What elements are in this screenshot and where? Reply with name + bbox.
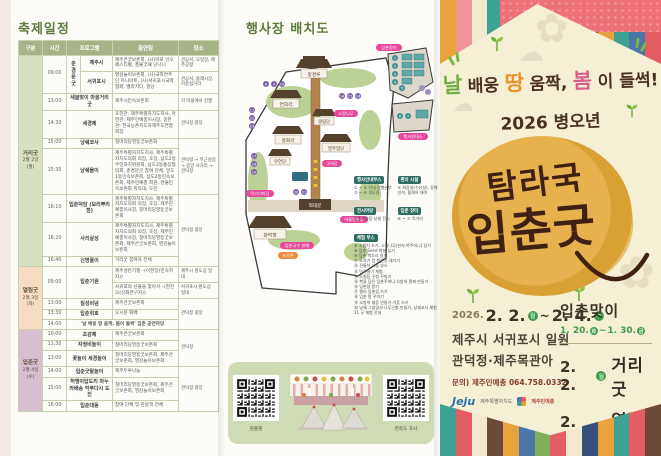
cell-cast: 참여 단체 및 관람객 전체 xyxy=(113,401,179,412)
day-badge: 화 xyxy=(590,327,598,335)
table-row: 14:30 세경제 초헌관: 제주특별자치도지사, 아헌관: 제주민예총이사장,… xyxy=(19,110,219,138)
cell-sub: 제주시 xyxy=(81,56,113,72)
cell-cast: 영감놀이보존회, (사)국악연주단 하니아트, (사)서귀포시국악협회, 벨라지… xyxy=(113,71,179,93)
table-header-row: 구분 시간 프로그램 출연팀 장소 xyxy=(19,41,219,56)
cover-slogan: 날 배웅 땅 움짝, 봄 이 들썩! xyxy=(440,62,661,100)
legend-section: 체험 부스 ⑧ 소원지 쓰기, 소원나무(한지·복주머니) 달기 ⑨ 입춘 Se… xyxy=(354,224,438,316)
sprout-icon xyxy=(464,286,482,304)
cell-program: 입춘휘호 xyxy=(67,309,113,320)
svg-text:입춘장터: 입춘장터 xyxy=(381,44,397,51)
building-gwandeokjeong: 관덕정 xyxy=(248,216,292,239)
col-gubun: 구분 xyxy=(19,41,43,56)
cell-time: 11:30 xyxy=(43,340,67,351)
cell-time: 13:00 xyxy=(43,351,67,367)
cloud-motif: ☁ xyxy=(518,38,544,68)
cell-program: '날 배웅 땅 움짝, 봄이 들썩' 입춘 공연마당 xyxy=(67,320,179,330)
cell-time: 14:00 xyxy=(43,367,67,378)
slogan-stroke xyxy=(455,52,459,62)
table-row: 16:10 입춘덕담 (보리뿌리점) 제주특별자치도지사, 제주특별자치도의회 … xyxy=(19,195,219,223)
svg-text:관덕정: 관덕정 xyxy=(263,231,276,238)
cell-cast: 제주두루나눔 xyxy=(113,367,179,378)
cell-place: 관덕정 광장 xyxy=(179,367,219,412)
building-oedaemun-gate: 외대문 xyxy=(299,199,331,210)
qr-left-caption: 원플랫 xyxy=(233,426,279,432)
cell-place: 관공서, 오일장, 제주공항 xyxy=(179,56,219,72)
cell-cast: 제주시민속보존회 xyxy=(113,93,179,110)
brochure-page: 축제일정 구분 시간 프로그램 출연팀 장소 거리굿 2월 2일 (월) 09:… xyxy=(0,0,661,456)
schedule-table: 구분 시간 프로그램 출연팀 장소 거리굿 2월 2일 (월) 09:00 춘경… xyxy=(18,40,219,412)
svg-text:21: 21 xyxy=(302,190,307,194)
cell-cast: 초헌관: 제주특별자치도지사, 아헌관: 제주민예총이사장, 종헌관: 한국농촌… xyxy=(113,110,179,138)
group-cell: 열림굿 2월 3일 (화) xyxy=(19,267,43,330)
cell-cast: 칠머리당영등굿보존회, 제주큰굿보존회, 영감놀이보존회 xyxy=(113,351,179,367)
building-yeonhuigak: 연희각 xyxy=(270,90,302,108)
cell-program: 신명풀이 xyxy=(67,256,113,267)
cell-program: 사리살성 xyxy=(67,222,113,256)
pond xyxy=(292,172,308,181)
svg-text:1: 1 xyxy=(394,56,396,60)
cell-time: 14:00 xyxy=(43,320,67,330)
venue-map-panel: 행사장 배치도 xyxy=(220,0,440,456)
svg-text:외대문: 외대문 xyxy=(309,202,322,209)
cell-place: 서귀포시 원도심 일대 xyxy=(179,283,219,299)
legend-chip: 체험 부스 xyxy=(354,234,378,242)
cell-program: 춘경문굿 xyxy=(67,56,81,94)
svg-text:소원나무: 소원나무 xyxy=(338,110,354,117)
cell-cast: 제주특별자치도지사, 제주특별자치도의회 의장, 호장, 제주민예총이사장, 칠… xyxy=(113,195,179,223)
svg-text:영주협당: 영주협당 xyxy=(328,145,344,152)
left-edge-strip xyxy=(0,0,11,456)
legend-chip: 전시마당 xyxy=(354,207,376,215)
legend-chip: 편의 시설 xyxy=(398,176,422,184)
day-badge: 월 xyxy=(528,311,538,321)
svg-text:16: 16 xyxy=(356,94,361,98)
legend-section: 전시마당 입춘기원탑·낭쉐 전시 xyxy=(354,197,395,221)
cell-program: 칠성비념 xyxy=(67,299,113,310)
ritual-table-illustration xyxy=(288,374,374,432)
cell-place: 관덕정 → 무근성길 → 중앙 사거리 → 관덕정 xyxy=(179,138,219,194)
jeju-logo: Jeju xyxy=(452,395,475,408)
cell-place: 관공서, 올레시장, 이중섭거리 xyxy=(179,71,219,93)
cell-program: 허맹이답도리 마누라배송 막푸다시 도진 xyxy=(67,377,113,401)
svg-text:17: 17 xyxy=(252,154,257,158)
cell-cast: 오시훈 화백 xyxy=(113,309,179,320)
legend-section: 입춘 장터 ⑥ ~ ⑦ 먹거리 xyxy=(398,197,439,221)
svg-text:12: 12 xyxy=(250,116,255,120)
cell-time: 13:00 xyxy=(43,93,67,110)
cover-panel: ✿ ☁ ☁ ✿ 날 배웅 땅 움짝, 봄 xyxy=(440,0,661,456)
day-badge: 월 xyxy=(596,371,606,381)
cell-program: 낭쉐몰이 xyxy=(67,149,113,195)
svg-text:19: 19 xyxy=(252,170,257,174)
svg-text:연희각: 연희각 xyxy=(280,101,293,108)
table-row: 15:00 낭쉐코사 칠머리당영등굿보존회 관덕정 → 무근성길 → 중앙 사거… xyxy=(19,138,219,149)
qr-band: 원플랫 xyxy=(228,362,434,444)
svg-text:먹거리마당: 먹거리마당 xyxy=(250,190,269,197)
svg-text:굿마당: 굿마당 xyxy=(326,160,338,167)
cell-place: 관덕정 광장 xyxy=(179,110,219,138)
cell-program: 자청비놀이 xyxy=(67,340,113,351)
svg-text:행사안내소: 행사안내소 xyxy=(403,133,422,140)
cell-cast: 제주성안기행 –(이현장(민속학자)) xyxy=(113,267,179,283)
table-row: 입춘굿 2월 4일 (수) 10:00 초감제 제주큰굿보존회 관덕정 xyxy=(19,330,219,341)
cell-cast: 서귀포의 산물을 찾아서 –(현진오(신화연구자)) xyxy=(113,283,179,299)
pre-event-dates: 1. 20. 화 ~ 1. 30. 금 xyxy=(560,326,656,336)
map-title: 행사장 배치도 xyxy=(246,18,329,37)
schedule-panel: 축제일정 구분 시간 프로그램 출연팀 장소 거리굿 2월 2일 (월) 09:… xyxy=(11,0,220,456)
cell-time: 09:00 xyxy=(43,267,67,299)
qr-right-caption: 만족도 조사 xyxy=(383,426,429,432)
cell-cast: 칠머리당영등굿보존회 xyxy=(113,138,179,149)
svg-text:14: 14 xyxy=(340,94,345,98)
svg-text:5: 5 xyxy=(401,86,403,90)
table-row: 거리굿 2월 2일 (월) 09:00 춘경문굿 제주시 제주큰굿보존회, (사… xyxy=(19,56,219,72)
cell-cast: 칠머리당영등굿보존회 xyxy=(113,340,179,351)
svg-text:11: 11 xyxy=(250,108,255,112)
cell-time: 09:00 xyxy=(43,56,67,94)
table-row: 13:00 칠성비념 제주큰굿보존회 관덕정 광장 xyxy=(19,299,219,310)
cell-cast: 제주큰굿보존회, (사)마로 인오페스티벌, 풍물굿패 난나니 xyxy=(113,56,179,72)
qr-right: 만족도 조사 xyxy=(383,375,429,432)
cell-time: 15:00 xyxy=(43,377,67,401)
legend-chip: 입춘 장터 xyxy=(398,207,422,215)
legend-section: 편의 시설 ⑤ 화장실(수유실), 장애인석, 휠체어 대여 xyxy=(398,166,439,195)
pre-event-title: 입춘맞이 xyxy=(560,300,656,321)
table-row: 14:00 입춘굿탈놀이 제주두루나눔 관덕정 광장 xyxy=(19,367,219,378)
calligraphy-swash xyxy=(575,245,650,300)
minyechong-logo xyxy=(517,397,526,406)
cell-cast: 제주큰굿보존회 xyxy=(113,299,179,310)
building-honghwagak: 홍화각 xyxy=(272,126,304,144)
divider xyxy=(560,343,652,344)
col-place: 장소 xyxy=(179,41,219,56)
cell-cast: 칠머리당영등굿보존회, 제주큰굿보존회, 영감놀이보존회 xyxy=(113,377,179,401)
table-row: 열림굿 2월 3일 (화) 09:00 입춘기원 제주성안기행 –(이현장(민속… xyxy=(19,267,219,283)
svg-text:2: 2 xyxy=(394,64,396,68)
svg-text:귤림당: 귤림당 xyxy=(318,118,330,125)
col-time: 시간 xyxy=(43,41,67,56)
col-program: 프로그램 xyxy=(67,41,113,56)
svg-text:10: 10 xyxy=(280,82,285,86)
cell-time: 10:00 xyxy=(43,330,67,341)
schedule-title: 축제일정 xyxy=(18,18,70,37)
building-yeongjuhyeopdang: 영주협당 xyxy=(320,134,352,152)
svg-text:13: 13 xyxy=(250,124,255,128)
cell-program: 꽃놀이 세경놀이 xyxy=(67,351,113,367)
table-row: 13:00 새봄맞이 마을거리굿 제주시민속보존회 각 마을에서 진행 xyxy=(19,93,219,110)
slogan-stroke xyxy=(448,56,455,66)
svg-text:18: 18 xyxy=(252,162,257,166)
svg-text:15: 15 xyxy=(348,94,353,98)
cell-time: 16:40 xyxy=(43,256,67,267)
building-uyeondang: 우연당 xyxy=(268,149,292,165)
svg-text:3: 3 xyxy=(394,72,396,76)
cell-time: 15:00 xyxy=(43,138,67,149)
cell-time: 14:30 xyxy=(43,110,67,138)
group-cell: 거리굿 2월 2일 (월) xyxy=(19,56,43,267)
cell-place: 제주시 원도심 일대 xyxy=(179,267,219,283)
svg-text:포토존: 포토존 xyxy=(282,253,294,258)
legend-section: 행사안내부스 ① ~ ② 안내·진행본부 ③ ~ ④ 의무실 xyxy=(354,166,395,195)
qr-code xyxy=(233,375,279,421)
cell-program: 세경제 xyxy=(67,110,113,138)
building-gyullimdang: 귤림당 xyxy=(312,109,336,125)
cell-program: 입춘기원 xyxy=(67,267,113,299)
svg-text:우연당: 우연당 xyxy=(274,158,286,165)
svg-text:20: 20 xyxy=(294,190,299,194)
cell-time: 16:20 xyxy=(43,222,67,256)
cell-time: 15:30 xyxy=(43,149,67,195)
map-legend: 행사안내부스 ① ~ ② 안내·진행본부 ③ ~ ④ 의무실 편의 시설 ⑤ 화… xyxy=(354,166,438,317)
col-cast: 출연팀 xyxy=(113,41,179,56)
cell-time: 13:00 xyxy=(43,299,67,310)
cell-program: 초감제 xyxy=(67,330,113,341)
cell-place: 각 마을에서 진행 xyxy=(179,93,219,110)
svg-text:홍화각: 홍화각 xyxy=(282,137,295,144)
sprout-icon xyxy=(488,34,506,52)
cell-cast: 제주특별자치도지사, 제주특별자치도의회 의장, 호장, 삼도2동주민자치위원회… xyxy=(113,149,179,195)
svg-text:망경루: 망경루 xyxy=(308,71,321,78)
cell-time: 16:10 xyxy=(43,195,67,223)
cell-place: 관덕정 광장 xyxy=(179,195,219,267)
legend-chip: 행사안내부스 xyxy=(354,176,384,184)
cell-cast: 제주큰굿보존회 xyxy=(113,330,179,341)
cell-program: 입춘대동 xyxy=(67,401,113,412)
schedule-row: 2. 2. 월 거리굿 xyxy=(560,352,656,400)
cell-program: 낭쉐코사 xyxy=(67,138,113,149)
cell-time: 13:30 xyxy=(43,309,67,320)
qr-left: 원플랫 xyxy=(233,375,279,432)
group-cell: 입춘굿 2월 4일 (수) xyxy=(19,330,43,411)
day-badge: 금 xyxy=(637,327,645,335)
svg-text:7: 7 xyxy=(407,114,409,118)
svg-text:입춘국수 판매: 입춘국수 판매 xyxy=(285,242,310,249)
cell-cast: 제주특별자치도지사, 제주특별자치도의회 의장, 호장, 제주민예총이사장, 칠… xyxy=(113,222,179,256)
coral-band xyxy=(500,0,661,32)
cell-sub: 서귀포시 xyxy=(81,71,113,93)
cell-place: 관덕정 광장 xyxy=(179,299,219,330)
building-manggyeongru: 망경루 xyxy=(296,56,332,78)
cell-place: 관덕정 xyxy=(179,330,219,367)
qr-code xyxy=(383,375,429,421)
cell-cast: 거리굿 참여자 전체 xyxy=(113,256,179,267)
cell-program: 입춘덕담 (보리뿌리점) xyxy=(67,195,113,223)
central-path xyxy=(311,76,320,202)
cell-program: 새봄맞이 마을거리굿 xyxy=(67,93,113,110)
cell-time: 16:00 xyxy=(43,401,67,412)
cell-program: 입춘굿탈놀이 xyxy=(67,367,113,378)
